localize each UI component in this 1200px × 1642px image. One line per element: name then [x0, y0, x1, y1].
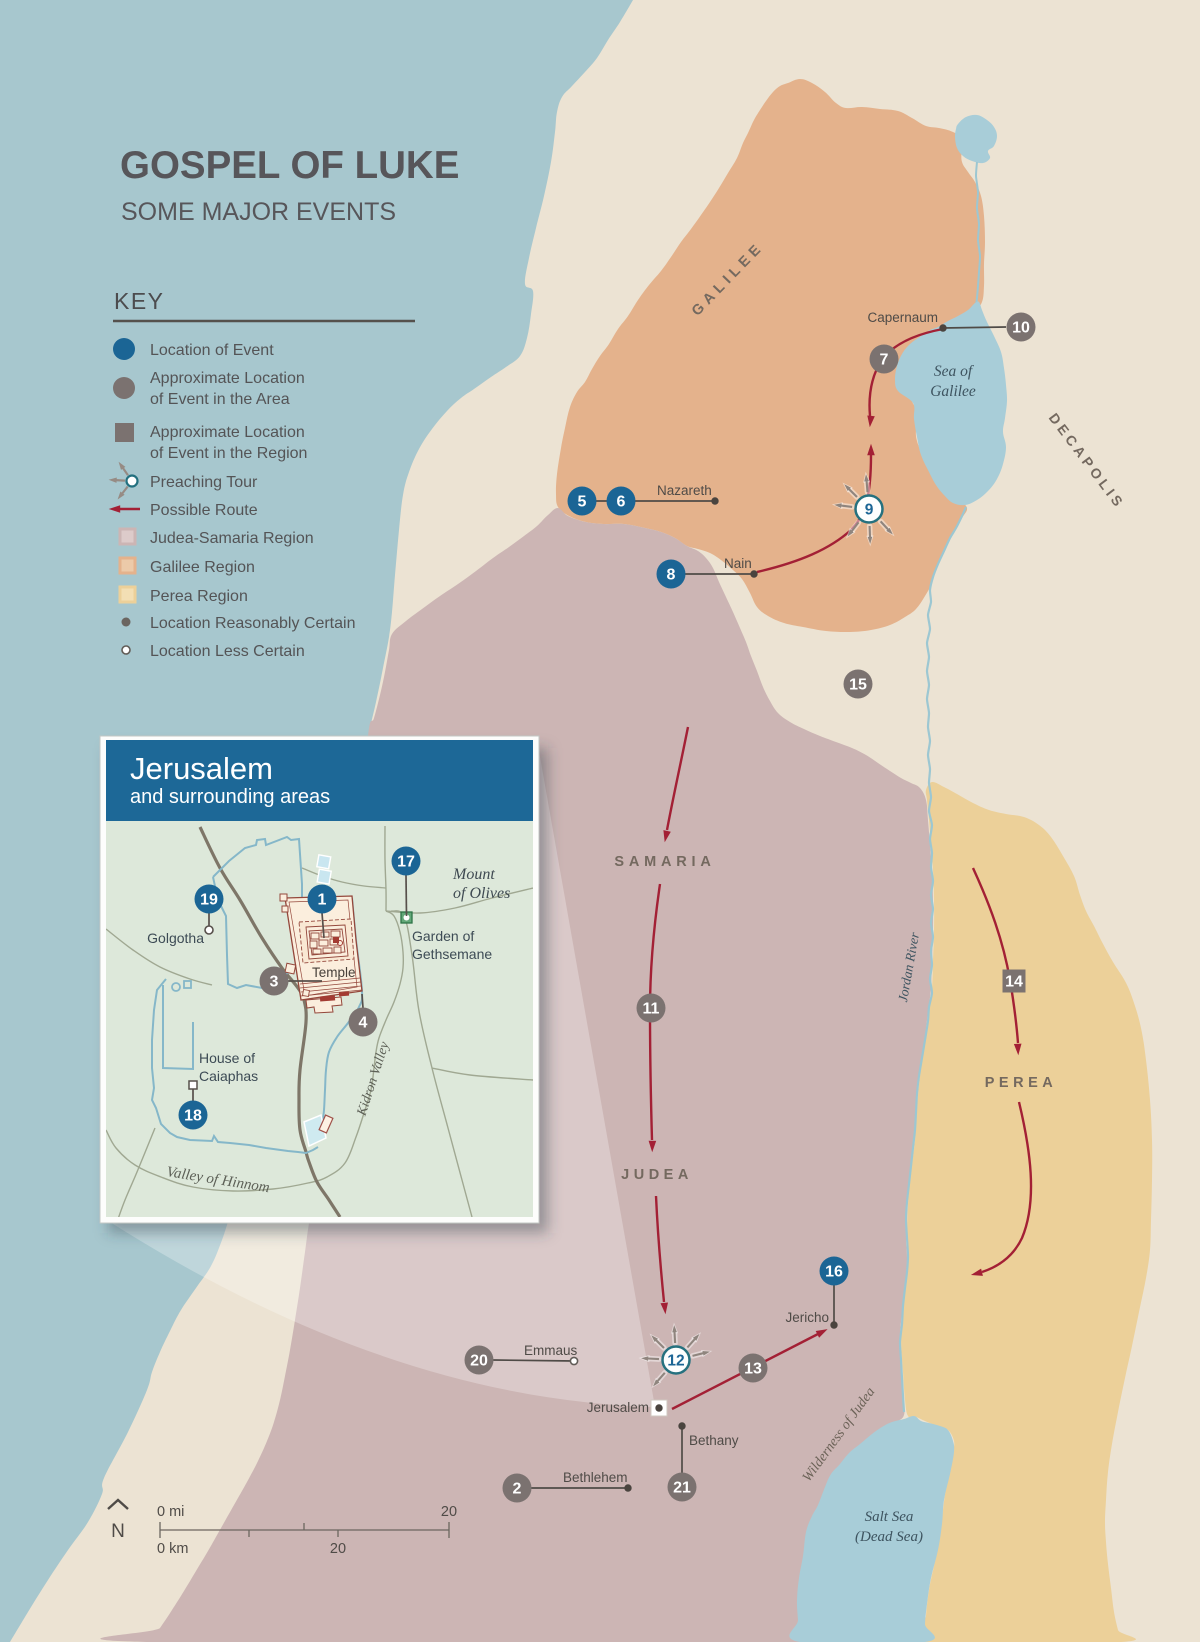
- svg-text:20: 20: [330, 1541, 346, 1557]
- svg-text:Salt Sea: Salt Sea: [865, 1509, 914, 1525]
- svg-text:7: 7: [880, 352, 889, 369]
- svg-text:Jericho: Jericho: [785, 1310, 829, 1325]
- svg-text:Sea of: Sea of: [934, 363, 975, 380]
- svg-text:N: N: [111, 1521, 125, 1542]
- svg-text:Preaching Tour: Preaching Tour: [150, 474, 258, 491]
- svg-text:PEREA: PEREA: [985, 1075, 1057, 1091]
- svg-text:Garden of: Garden of: [412, 928, 474, 944]
- svg-text:Location Less Certain: Location Less Certain: [150, 643, 305, 660]
- svg-text:3: 3: [270, 974, 279, 991]
- svg-text:Temple: Temple: [312, 965, 356, 980]
- svg-text:Caiaphas: Caiaphas: [199, 1068, 258, 1084]
- svg-text:Mount: Mount: [452, 866, 495, 883]
- svg-text:Perea Region: Perea Region: [150, 588, 248, 605]
- svg-text:Nain: Nain: [724, 556, 752, 571]
- svg-text:GOSPEL OF LUKE: GOSPEL OF LUKE: [120, 144, 459, 187]
- svg-text:4: 4: [359, 1015, 368, 1032]
- svg-text:Golgotha: Golgotha: [147, 930, 204, 946]
- svg-text:12: 12: [667, 1353, 684, 1370]
- svg-text:16: 16: [825, 1264, 843, 1281]
- svg-text:5: 5: [578, 494, 587, 511]
- svg-text:of Event in the Region: of Event in the Region: [150, 445, 307, 462]
- svg-text:18: 18: [184, 1108, 202, 1125]
- svg-text:SAMARIA: SAMARIA: [614, 854, 715, 870]
- svg-text:9: 9: [865, 502, 874, 519]
- svg-text:2: 2: [513, 1481, 522, 1498]
- svg-text:and surrounding areas: and surrounding areas: [130, 786, 330, 808]
- svg-text:Bethany: Bethany: [689, 1433, 739, 1448]
- svg-text:Location of Event: Location of Event: [150, 342, 274, 359]
- svg-text:8: 8: [667, 567, 676, 584]
- svg-text:Jerusalem: Jerusalem: [587, 1400, 649, 1415]
- svg-text:of Olives: of Olives: [453, 885, 510, 902]
- svg-text:21: 21: [673, 1480, 691, 1497]
- svg-text:11: 11: [643, 1001, 660, 1018]
- svg-text:20: 20: [441, 1504, 457, 1520]
- svg-text:0 mi: 0 mi: [157, 1504, 184, 1520]
- svg-text:House of: House of: [199, 1050, 255, 1066]
- svg-text:14: 14: [1005, 974, 1023, 991]
- svg-text:Capernaum: Capernaum: [867, 310, 938, 325]
- svg-text:Jerusalem: Jerusalem: [130, 751, 273, 786]
- svg-text:17: 17: [397, 854, 415, 871]
- svg-text:13: 13: [744, 1361, 762, 1378]
- svg-text:Approximate Location: Approximate Location: [150, 370, 305, 387]
- svg-text:Galilee: Galilee: [930, 383, 976, 400]
- svg-text:Approximate Location: Approximate Location: [150, 424, 305, 441]
- svg-text:KEY: KEY: [114, 288, 165, 314]
- svg-text:Judea-Samaria Region: Judea-Samaria Region: [150, 530, 314, 547]
- svg-text:Nazareth: Nazareth: [657, 483, 712, 498]
- svg-text:20: 20: [470, 1353, 488, 1370]
- svg-text:Galilee Region: Galilee Region: [150, 559, 255, 576]
- svg-text:1: 1: [318, 892, 327, 909]
- svg-text:JUDEA: JUDEA: [621, 1167, 693, 1183]
- svg-text:SOME MAJOR EVENTS: SOME MAJOR EVENTS: [121, 198, 396, 226]
- svg-text:0 km: 0 km: [157, 1541, 188, 1557]
- svg-text:15: 15: [849, 677, 867, 694]
- svg-text:of Event in the Area: of Event in the Area: [150, 391, 290, 408]
- svg-text:(Dead Sea): (Dead Sea): [855, 1529, 923, 1545]
- svg-text:10: 10: [1012, 320, 1030, 337]
- svg-text:Location Reasonably Certain: Location Reasonably Certain: [150, 615, 355, 632]
- svg-text:Gethsemane: Gethsemane: [412, 946, 492, 962]
- svg-text:6: 6: [617, 494, 626, 511]
- svg-text:19: 19: [200, 892, 218, 909]
- svg-text:Bethlehem: Bethlehem: [563, 1470, 628, 1485]
- svg-text:Emmaus: Emmaus: [524, 1343, 578, 1358]
- svg-text:Possible Route: Possible Route: [150, 502, 258, 519]
